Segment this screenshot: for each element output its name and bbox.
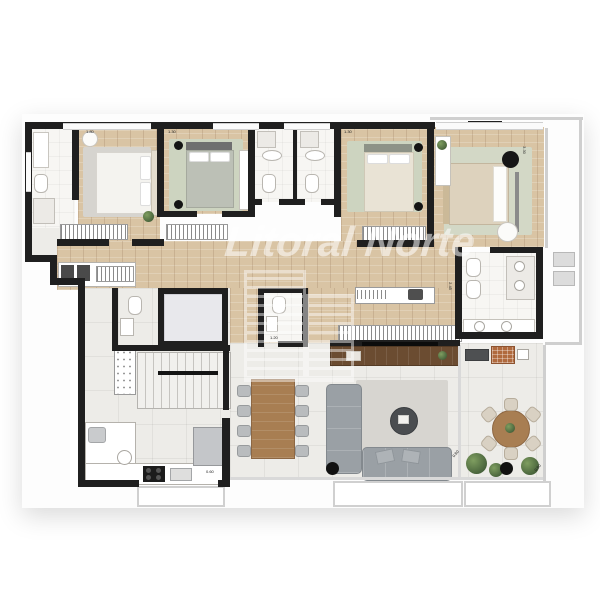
bedroom3-pillow [367, 154, 388, 164]
lavabo-wall [302, 288, 308, 347]
railing-right [579, 117, 582, 345]
bedroom2-wardrobe [166, 224, 228, 240]
wall-kitchen-bottom [78, 480, 139, 487]
cooktop-burner [156, 468, 161, 473]
chaise-sofa [326, 384, 362, 474]
wall-bed3-bottom [357, 240, 434, 247]
dining-chair [237, 405, 251, 417]
wall-stairs-top [112, 345, 230, 351]
bath3-shower [300, 131, 319, 148]
terrace-chair [504, 398, 518, 411]
bath3-sink [305, 150, 325, 161]
dimension-label: 1.30 [344, 130, 352, 134]
coffee-table-book [398, 415, 409, 424]
suite-bath-toilet [466, 258, 481, 277]
fridge [193, 427, 223, 466]
dimension-label: 0.60 [206, 470, 214, 474]
dining-table [251, 379, 295, 459]
master-bed-pillow [140, 156, 151, 180]
bath2-sink [262, 150, 282, 161]
dining-chair [237, 445, 251, 457]
terrace-partition [458, 345, 461, 479]
ac-unit [553, 271, 575, 286]
wall-left [25, 122, 32, 262]
wall-suitebath-right [536, 247, 543, 338]
bedroom3-lamp [414, 143, 423, 152]
wall-wc-left [112, 288, 118, 350]
hall-cabinet-hatch [357, 290, 387, 299]
bedroom4-plant [437, 140, 447, 150]
dining-chair [295, 405, 309, 417]
stairs [137, 352, 231, 409]
dining-chair [237, 425, 251, 437]
bedroom3-lamp [414, 202, 423, 211]
bedroom3-wardrobe [362, 226, 426, 241]
dining-chair [295, 425, 309, 437]
cooktop-burner [156, 475, 161, 480]
living-balcony-railing [333, 481, 463, 507]
bath2-shower [257, 131, 276, 148]
wall-suitebath-left [455, 247, 462, 338]
bedroom4-armchair [497, 222, 518, 242]
bedroom4-desk [515, 172, 519, 232]
wall-baths-bottom [279, 199, 305, 205]
master-bed-pillow [140, 182, 151, 206]
window-bedroom4 [436, 122, 543, 130]
wall-kitchen-right [222, 418, 230, 482]
lavabo-wall [278, 341, 308, 347]
bedroom2-lamp [174, 141, 183, 150]
floor-plan: Litoral Norte [0, 0, 600, 600]
sofa-cushion [401, 449, 421, 465]
column [500, 462, 513, 475]
kitchen-sink [170, 468, 192, 481]
dimension-label: 1.80 [86, 130, 94, 134]
wall-master-bottom [57, 239, 109, 246]
wall-suitebath-bottom [455, 332, 543, 339]
cooktop-burner [146, 475, 151, 480]
window-left [26, 152, 31, 192]
pantry-rack [114, 348, 136, 395]
wall-masterbath [72, 128, 79, 200]
wc-sink [120, 318, 134, 336]
hall-cabinet-box [408, 289, 423, 300]
master-bath-toilet [34, 174, 48, 193]
bedroom2-pillow [189, 152, 209, 162]
cooktop-burner [146, 468, 151, 473]
bedroom2-lamp [174, 200, 183, 209]
suite-vanity-sink [501, 321, 512, 332]
railing-service-bottom [545, 342, 582, 345]
wall-master-bottom [132, 239, 164, 246]
bedroom2-pillow [210, 152, 230, 162]
elevator-wall [158, 288, 228, 294]
bedroom2-headboard [186, 142, 232, 150]
wc-toilet [128, 296, 142, 315]
column [326, 462, 339, 475]
bedroom4-duvet-fold [493, 166, 507, 222]
wall-stairs-right [223, 350, 229, 410]
wall-bed3-bed4 [427, 122, 434, 246]
terrace-plant [466, 453, 487, 474]
terrace-chair [504, 447, 518, 460]
dimension-label: 1.30 [168, 130, 176, 134]
dining-chair [295, 445, 309, 457]
dining-chair [237, 385, 251, 397]
dimension-label: 3.30 [522, 146, 526, 154]
terrace-right-edge [543, 345, 546, 481]
terrace-sink [517, 349, 529, 360]
lavabo-toilet [272, 296, 286, 314]
lavabo-wall [258, 288, 264, 347]
bbq-counter [465, 349, 489, 361]
bedroom3-pillow [389, 154, 410, 164]
wall-baths-bottom [248, 199, 262, 205]
master-plant [143, 211, 154, 222]
bedroom3-headboard [364, 144, 412, 152]
living-glass-front [230, 477, 543, 480]
kitchen-appliance [88, 427, 106, 443]
wall-bed2-bottom [157, 211, 197, 217]
bath3-toilet [305, 174, 319, 193]
console-tray [346, 351, 361, 361]
kitchen-round-sink [117, 450, 132, 465]
bbq-grill [491, 346, 515, 364]
wall-baths-bottom [321, 199, 341, 205]
master-wardrobe [60, 224, 128, 240]
wall-master-bed2 [157, 122, 164, 217]
window-top [284, 123, 330, 130]
dimension-label: 2.45 [448, 282, 452, 290]
ac-unit [553, 252, 575, 267]
terrace-table-plant [505, 423, 515, 433]
terrace-balcony-railing [464, 481, 551, 507]
master-bath-vanity [33, 132, 49, 168]
bath2-toilet [262, 174, 276, 193]
kitchen-bay-railing [137, 486, 225, 507]
laundry-shelf [96, 266, 134, 282]
wall-bath-divider [293, 128, 297, 200]
dimension-label: 1.20 [270, 336, 278, 340]
lavabo-wall [258, 288, 308, 293]
suite-bath-bidet [466, 280, 481, 299]
dining-chair [295, 385, 309, 397]
master-bath-shower [33, 198, 55, 224]
wall-left-lower [78, 278, 85, 487]
stairs-handrail [158, 371, 218, 375]
railing-service-left [545, 128, 548, 248]
railing-top-right [430, 117, 583, 120]
lavabo-sink [266, 316, 278, 332]
wall-bed2-bottom [222, 211, 255, 217]
wall-kitchen-bottom [218, 480, 230, 487]
console-plant [438, 351, 447, 360]
window-top [213, 123, 259, 130]
tv [362, 342, 438, 346]
window-top [63, 123, 151, 130]
elevator-wall [222, 288, 228, 347]
elevator-cab [164, 294, 224, 343]
suite-shower-head [514, 261, 525, 272]
elevator-wall [158, 288, 164, 347]
suite-shower-head [514, 280, 525, 291]
bedroom4-desk-chair [502, 151, 519, 168]
suite-vanity-sink [474, 321, 485, 332]
